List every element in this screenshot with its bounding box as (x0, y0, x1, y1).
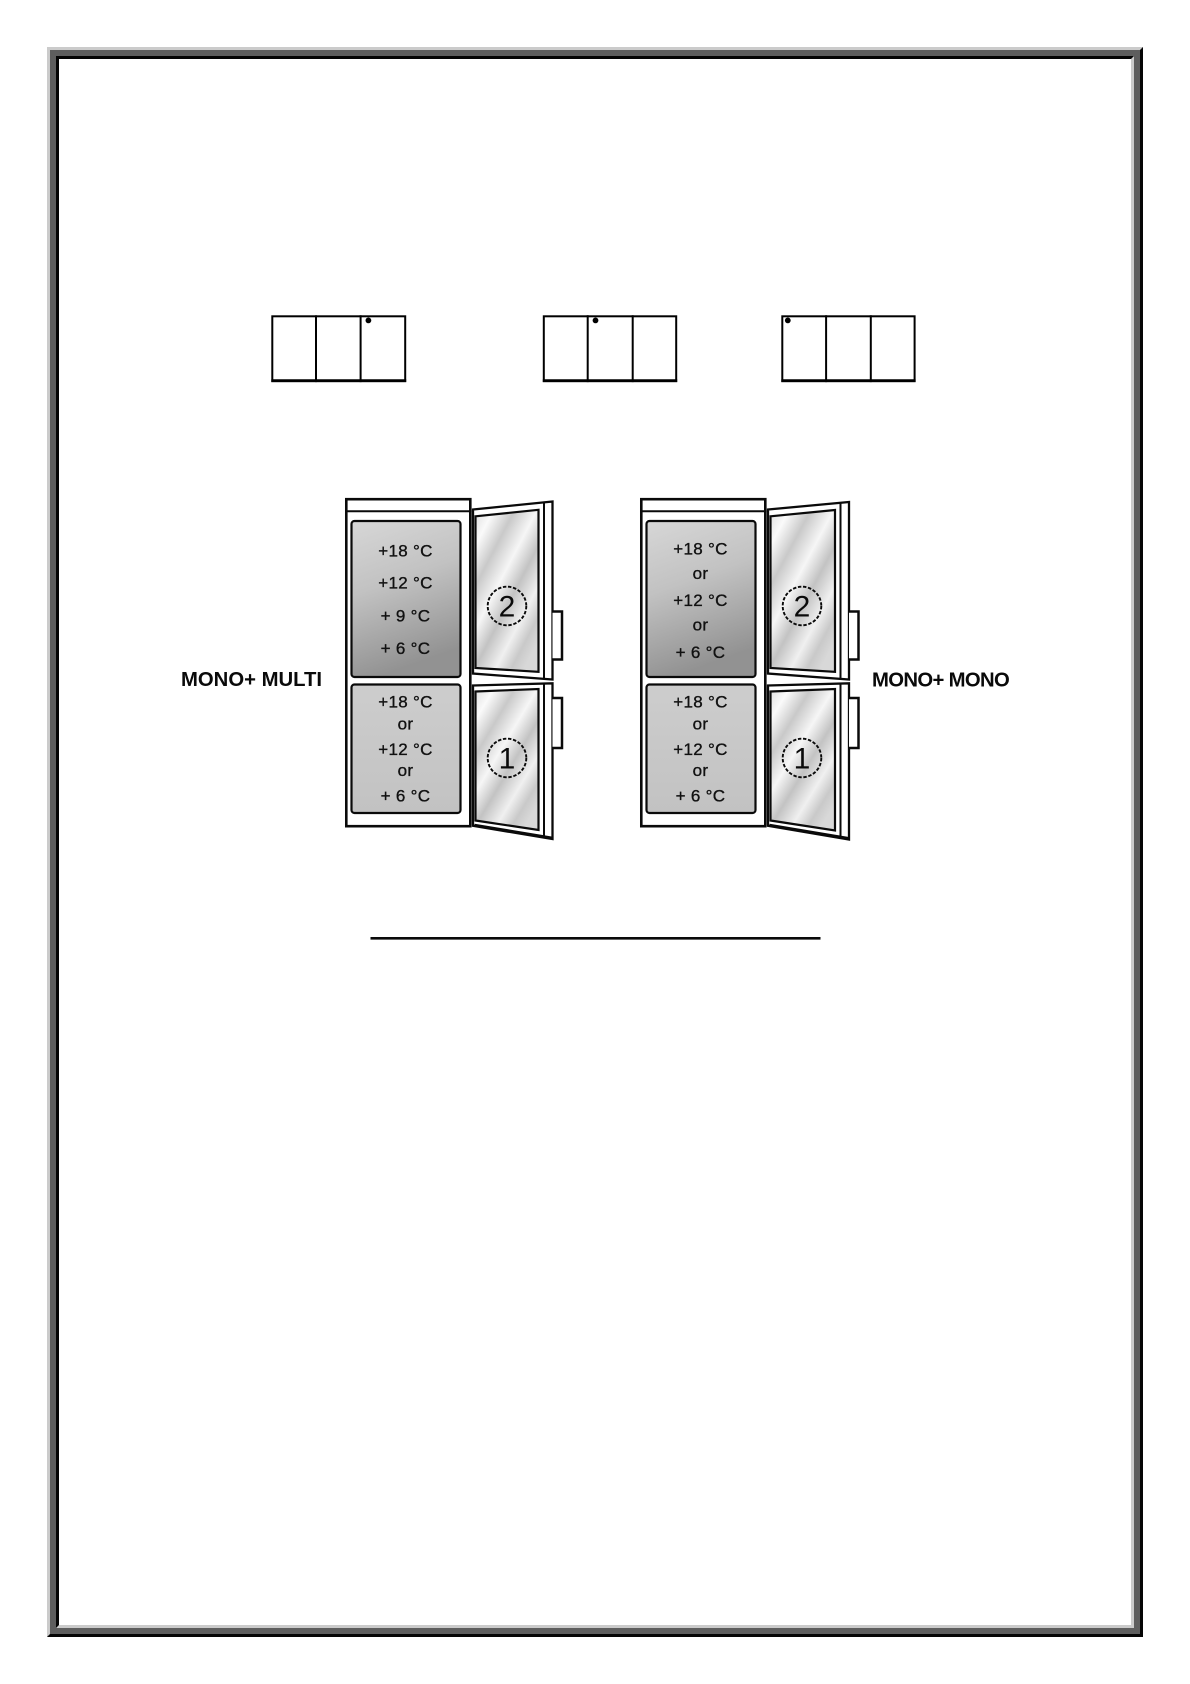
svg-text:or: or (693, 761, 709, 780)
svg-text:or: or (693, 715, 709, 734)
svg-text:MONO+ MULTI: MONO+ MULTI (181, 669, 322, 691)
svg-text:+12 °C: +12 °C (673, 740, 727, 759)
svg-text:+18 °C: +18 °C (673, 540, 727, 559)
svg-text:+12 °C: +12 °C (378, 740, 432, 759)
svg-text:or: or (398, 761, 414, 780)
svg-text:MONO+ MONO: MONO+ MONO (872, 670, 1009, 692)
svg-text:+ 6 °C: + 6 °C (676, 643, 726, 662)
svg-text:1: 1 (499, 743, 516, 776)
svg-text:or: or (693, 564, 709, 583)
svg-text:1: 1 (794, 743, 811, 776)
svg-text:+12 °C: +12 °C (673, 591, 727, 610)
svg-text:2: 2 (794, 591, 811, 624)
svg-text:+18 °C: +18 °C (378, 542, 432, 561)
svg-text:+12 °C: +12 °C (378, 574, 432, 593)
svg-text:+ 6 °C: + 6 °C (676, 786, 726, 805)
svg-text:+ 6 °C: + 6 °C (381, 639, 431, 658)
svg-text:+ 6 °C: + 6 °C (381, 786, 431, 805)
svg-text:+18 °C: +18 °C (378, 693, 432, 712)
svg-text:or: or (693, 615, 709, 634)
svg-text:2: 2 (499, 591, 516, 624)
svg-text:+18 °C: +18 °C (673, 693, 727, 712)
svg-text:or: or (398, 715, 414, 734)
svg-text:+ 9 °C: + 9 °C (381, 607, 431, 626)
